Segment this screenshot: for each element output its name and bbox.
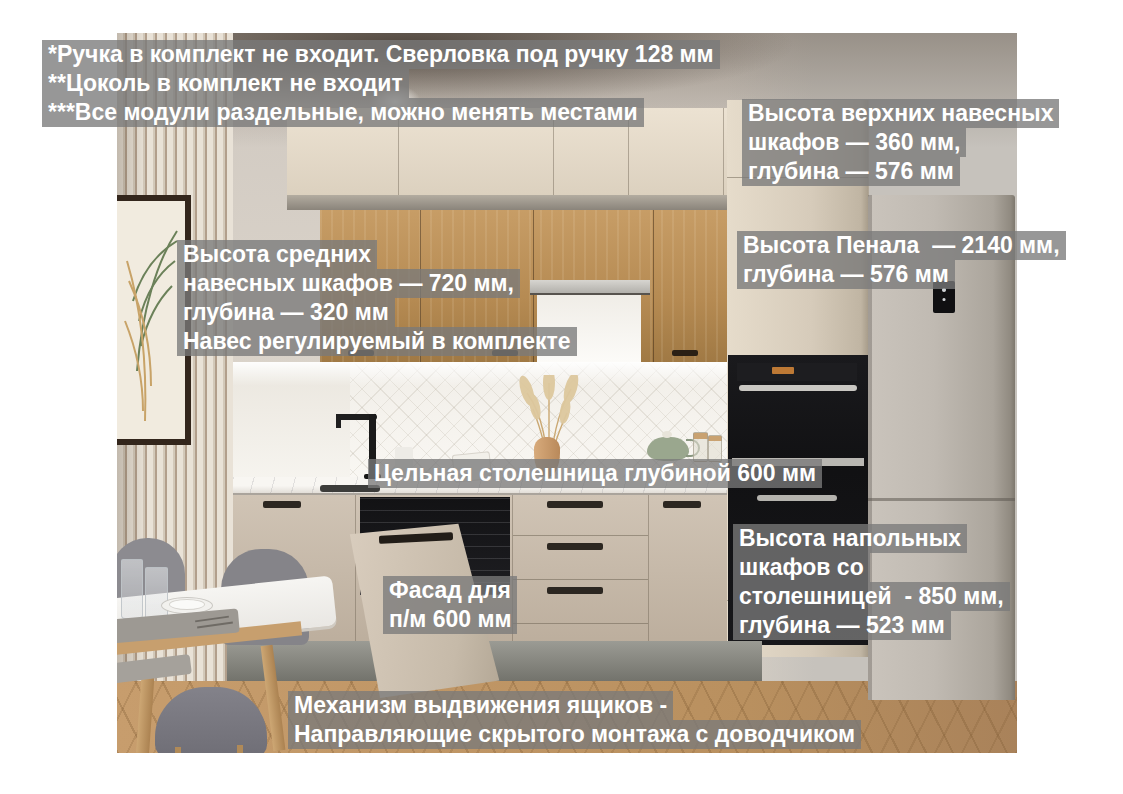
kitchen-product-card: *Ручка в комплект не входит. Сверловка п… <box>0 0 1123 794</box>
annotation-line: Цельная столешница глубиной 600 мм <box>368 459 822 488</box>
plate <box>169 599 205 610</box>
oven-clock <box>772 367 794 374</box>
door-handle <box>663 501 701 508</box>
soffit-shadow <box>287 195 742 210</box>
annotation-line: Высота Пенала — 2140 мм, <box>737 231 1066 260</box>
annotation-line: Механизм выдвижения ящиков - <box>288 691 673 720</box>
annotation-line: Высота средних <box>177 240 377 269</box>
annotation-line: глубина — 576 мм <box>737 260 955 289</box>
annotation-tall-cabinet: Высота Пенала — 2140 мм, глубина — 576 м… <box>737 231 1066 289</box>
drawer-handle <box>547 543 603 550</box>
annotation-line: Навес регулируемый в комплекте <box>177 327 577 356</box>
annotation-line: Высота напольных <box>733 524 967 553</box>
annotation-middle-cabinets: Высота средних навесных шкафов — 720 мм,… <box>177 240 577 356</box>
annotation-line: ***Все модули раздельные, можно менять м… <box>42 98 644 127</box>
fridge-seam <box>868 498 1015 501</box>
teapot <box>647 437 689 461</box>
annotation-line: *Ручка в комплект не входит. Сверловка п… <box>42 40 720 69</box>
oven-display <box>737 363 857 381</box>
facade-handle <box>379 532 453 544</box>
drawer-handle <box>547 501 603 508</box>
faucet-tip <box>336 414 341 428</box>
annotation-line: шкафов со <box>733 553 870 582</box>
annotation-line: Высота верхних навесных <box>742 99 1059 128</box>
drawer-seam <box>513 623 648 624</box>
chair-leg <box>237 745 243 753</box>
annotation-line: глубина — 320 мм <box>177 298 395 327</box>
annotation-countertop: Цельная столешница глубиной 600 мм <box>368 459 822 488</box>
annotation-base-cabinets: Высота напольных шкафов со столешницей -… <box>733 524 1010 640</box>
teapot-lid <box>662 431 672 438</box>
annotation-line: шкафов — 360 мм, <box>742 128 966 157</box>
palm-leaf-art <box>117 201 185 439</box>
spice-jar <box>693 432 708 462</box>
annotation-line: навесных шкафов — 720 мм, <box>177 269 520 298</box>
drawer-handle <box>547 587 603 594</box>
spice-jar <box>708 435 722 462</box>
annotation-line: глубина — 576 мм <box>742 157 960 186</box>
cabinet-handle <box>672 350 698 356</box>
chair-leg <box>175 747 181 753</box>
annotation-line: **Цоколь в комплект не входит <box>42 69 409 98</box>
oven-handle <box>739 385 857 391</box>
cabinet-seam <box>355 495 356 645</box>
cabinet-seam <box>648 495 649 645</box>
drawer-seam <box>513 535 648 536</box>
annotation-line: столешницей - 850 мм, <box>733 582 1010 611</box>
oven-handle <box>757 495 837 501</box>
drinking-glass <box>121 559 143 619</box>
annotation-drawer-mechanism: Механизм выдвижения ящиков - Направляющи… <box>288 691 861 749</box>
door-handle <box>263 501 301 508</box>
annotation-notes: *Ручка в комплект не входит. Сверловка п… <box>42 40 720 127</box>
cabinet-seam <box>653 210 654 362</box>
annotation-line: Фасад для <box>383 576 517 605</box>
annotation-line: п/м 600 мм <box>383 605 517 634</box>
annotation-line: Направляющие скрытого монтажа с доводчик… <box>288 720 861 749</box>
annotation-line: глубина — 523 мм <box>733 611 951 640</box>
annotation-upper-cabinets: Высота верхних навесных шкафов — 360 мм,… <box>742 99 1059 186</box>
drawer-seam <box>513 579 648 580</box>
under-cabinet-glow <box>233 362 742 386</box>
annotation-dishwasher-facade: Фасад для п/м 600 мм <box>383 576 517 634</box>
